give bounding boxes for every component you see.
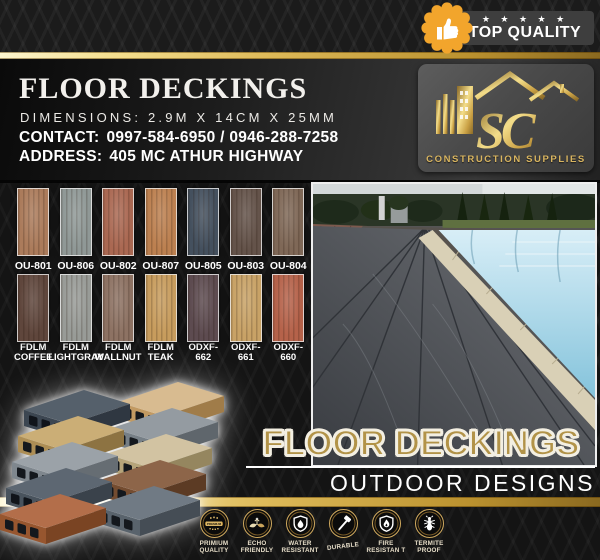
swatch-ou-802 <box>102 188 134 256</box>
dimensions-text: DIMENSIONS: 2.9M X 14CM X 25MM <box>20 110 337 125</box>
top-quality-banner: ★ ★ ★ ★ ★ TOP QUALITY <box>456 11 594 45</box>
swatch-ou-806 <box>60 188 92 256</box>
svg-text:PREMIUM: PREMIUM <box>207 521 222 525</box>
contact-label: CONTACT: <box>19 129 99 146</box>
page-title: FLOOR DECKINGS <box>19 72 307 106</box>
address-line: ADDRESS:405 MC ATHUR HIGHWAY <box>19 148 303 166</box>
swatch-odxf-662 <box>187 274 219 342</box>
feature-eco-friendly: ECHOFRIENDLY <box>239 509 275 555</box>
swatch-odxf-660 <box>272 274 304 342</box>
promo-divider <box>246 466 595 468</box>
feature-termite-proof: TERMITEPROOF <box>411 509 447 555</box>
swatch-label: FDLMCOFFEE <box>14 343 53 364</box>
contact-line: CONTACT:0997-584-6950 / 0946-288-7258 <box>19 129 338 147</box>
water-shield-icon <box>286 509 315 538</box>
flyer-page: ★ ★ ★ ★ ★ TOP QUALITY FLOOR DECKINGS DIM… <box>0 0 600 560</box>
swatch-label: OU-807 <box>142 260 179 272</box>
contact-numbers: 0997-584-6950 / 0946-288-7258 <box>106 129 338 146</box>
swatch-ou-803 <box>230 188 262 256</box>
fire-shield-icon <box>372 509 401 538</box>
sc-logo-icon: SC <box>418 64 594 156</box>
logo-monogram: SC <box>476 103 537 156</box>
company-name: CONSTRUCTION SUPPLIES <box>418 154 594 165</box>
swatch-label: OU-802 <box>100 260 137 272</box>
hammer-icon <box>329 509 358 538</box>
swatch-label: FDLMTEAK <box>148 343 174 364</box>
swatch-label: OU-801 <box>15 260 52 272</box>
promo-headline: FLOOR DECKINGS <box>246 424 596 464</box>
feature-fire-resistant: FIRERESISTAN T <box>368 509 404 555</box>
feature-water-resistant: WATERRESISTANT <box>282 509 318 555</box>
swatch-label: FDLMWALLNUT <box>95 343 141 364</box>
swatch-odxf-661 <box>230 274 262 342</box>
thumbs-up-seal-icon <box>421 2 473 59</box>
feature-durable: DURABLE <box>325 509 361 555</box>
swatch-label: OU-803 <box>227 260 264 272</box>
swatch-fdlm-wallnut <box>102 274 134 342</box>
feature-badges: PREMIUM PRIMIUMQUALITY ECHOFRIENDLY <box>196 509 447 555</box>
feature-premium-quality: PREMIUM PRIMIUMQUALITY <box>196 509 232 555</box>
color-swatch-grid: OU-801 OU-806 OU-802 OU-807 OU-805 OU-80… <box>12 188 312 364</box>
top-quality-label: TOP QUALITY <box>469 24 581 42</box>
address-label: ADDRESS: <box>19 148 102 165</box>
swatch-label: ODXF-662 <box>188 343 218 364</box>
swatch-label: OU-804 <box>270 260 307 272</box>
gold-stripe-top <box>0 52 600 59</box>
five-stars-icon: ★ ★ ★ ★ ★ <box>482 14 568 24</box>
swatch-label: ODXF-661 <box>231 343 261 364</box>
company-logo: SC CONSTRUCTION SUPPLIES <box>418 64 594 172</box>
promo-subheadline: OUTDOOR DESIGNS <box>246 470 595 497</box>
swatch-label: OU-806 <box>57 260 94 272</box>
swatch-fdlm-lightgray <box>60 274 92 342</box>
termite-icon <box>415 509 444 538</box>
address-value: 405 MC ATHUR HIGHWAY <box>109 148 303 165</box>
swatch-fdlm-teak <box>145 274 177 342</box>
swatch-ou-807 <box>145 188 177 256</box>
swatch-label: OU-805 <box>185 260 222 272</box>
swatch-ou-804 <box>272 188 304 256</box>
leaf-icon <box>243 509 272 538</box>
swatch-ou-801 <box>17 188 49 256</box>
swatch-label: ODXF-660 <box>273 343 303 364</box>
premium-seal-icon: PREMIUM <box>200 509 229 538</box>
swatch-fdlm-coffee <box>17 274 49 342</box>
swatch-ou-805 <box>187 188 219 256</box>
